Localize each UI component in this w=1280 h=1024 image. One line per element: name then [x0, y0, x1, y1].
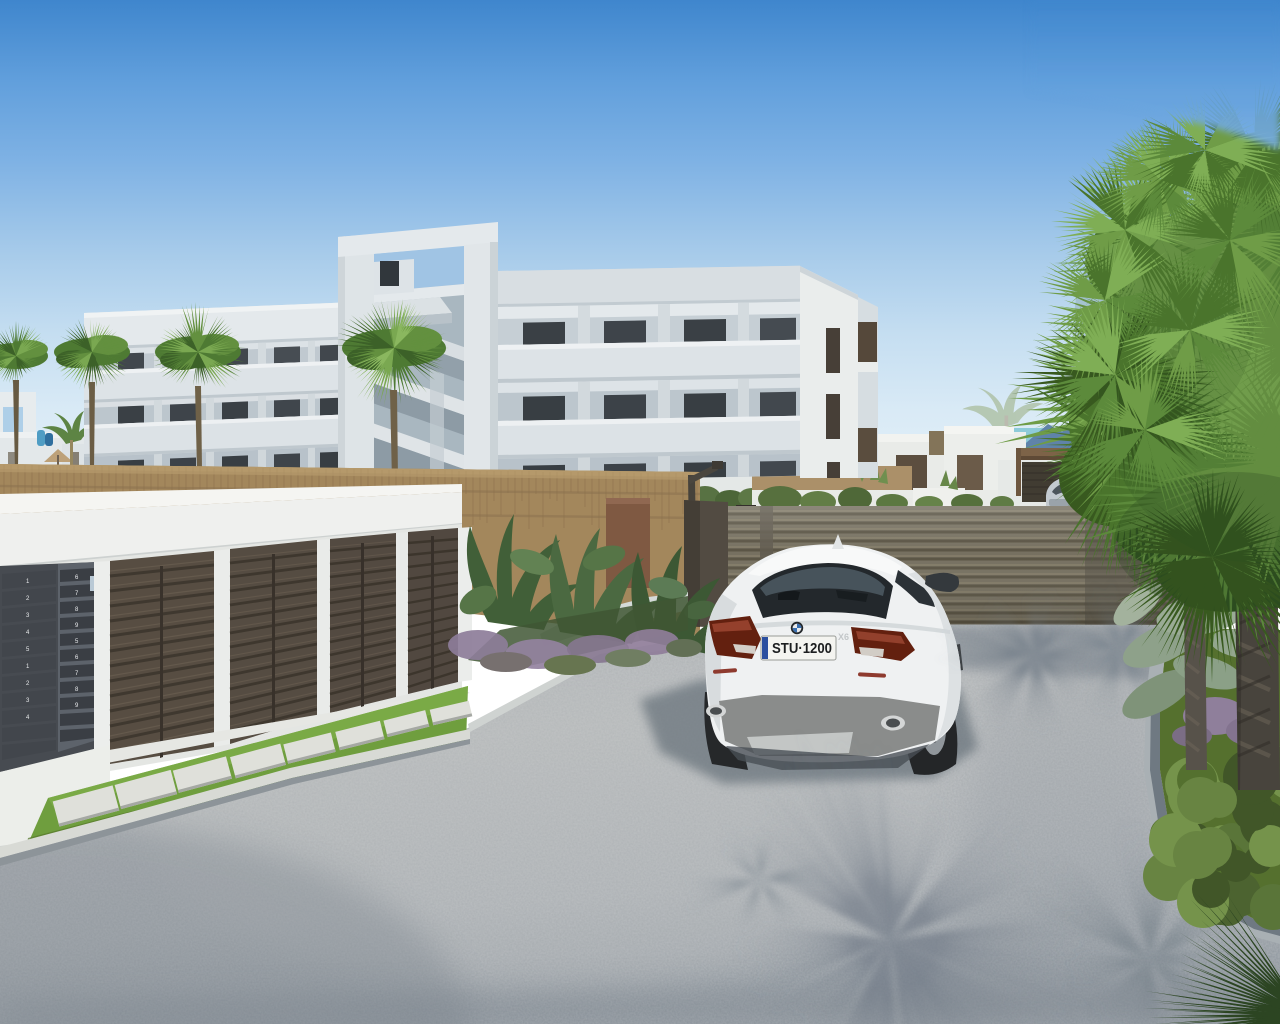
svg-text:X6: X6 — [838, 632, 849, 642]
svg-text:STU·1200: STU·1200 — [772, 640, 832, 657]
